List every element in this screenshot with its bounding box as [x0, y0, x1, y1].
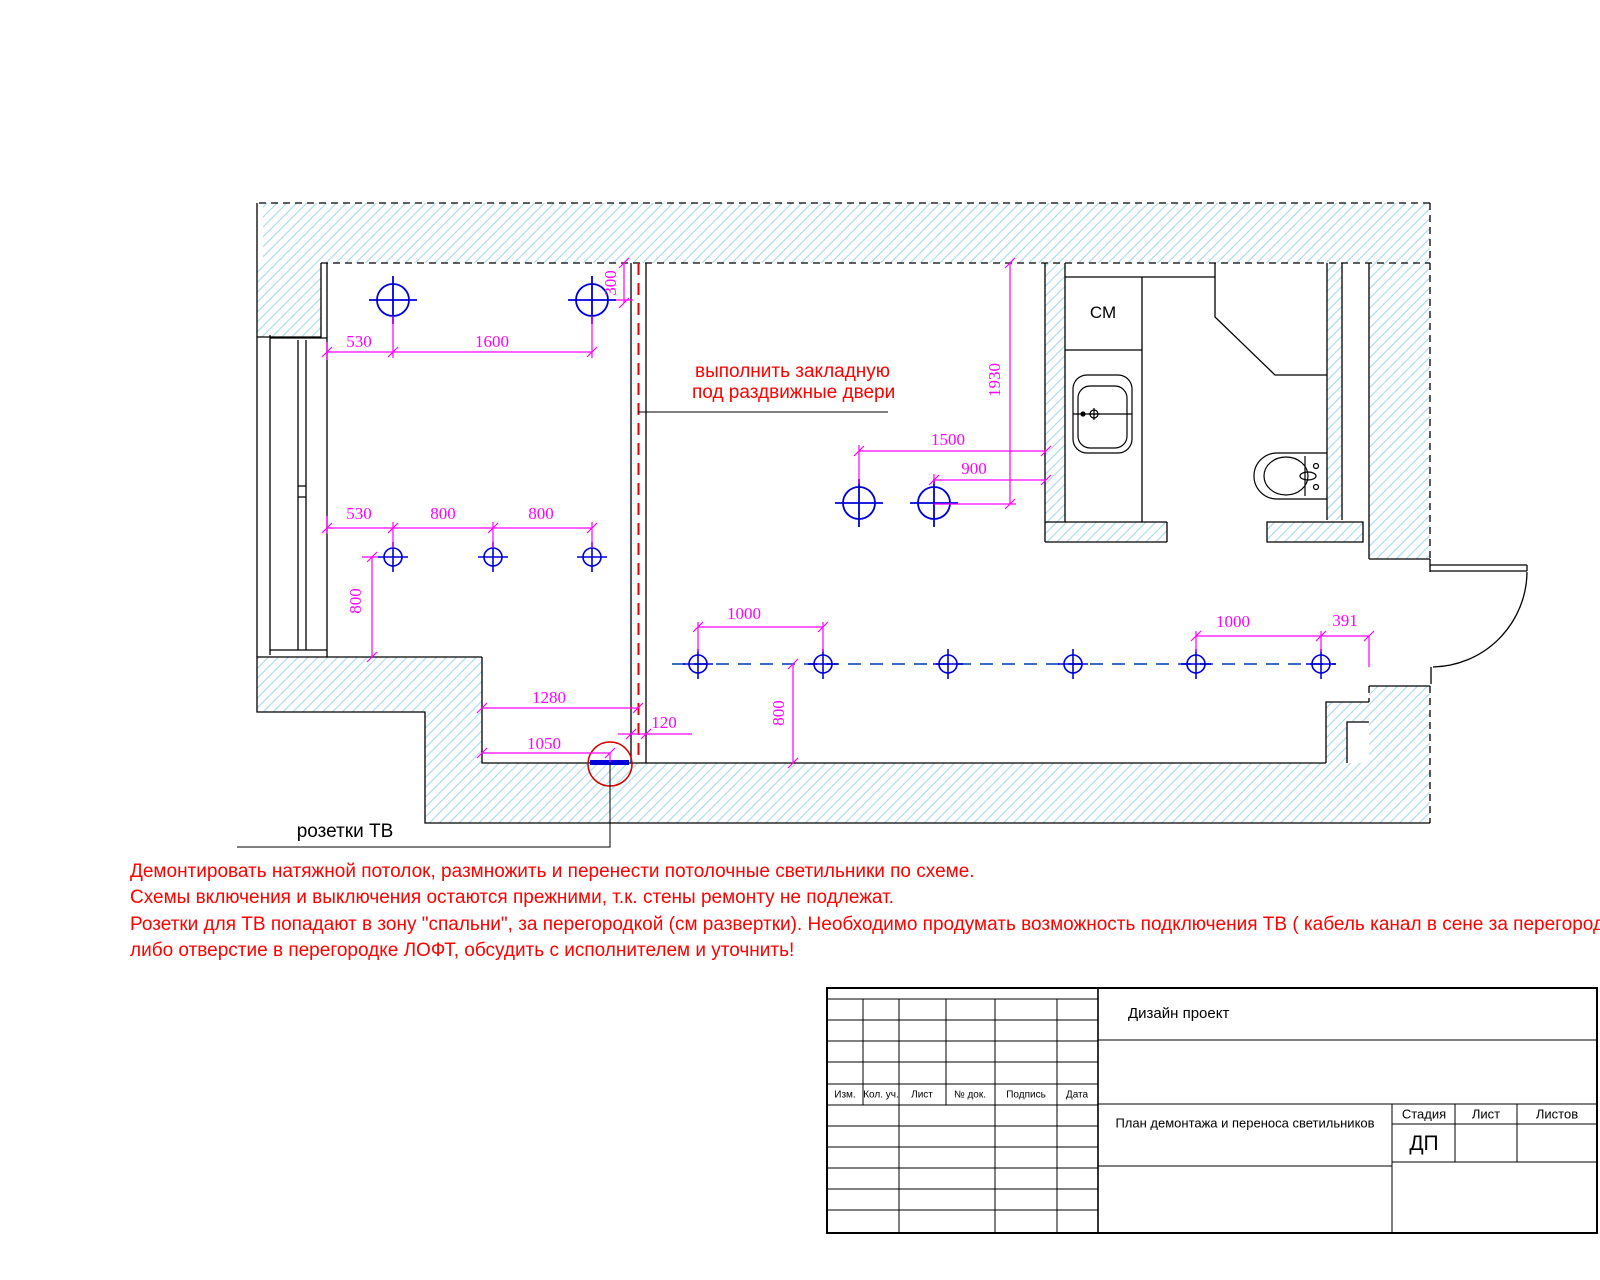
dim-label: 530 — [346, 332, 372, 352]
sink — [1073, 375, 1132, 453]
dim-label: 800 — [769, 700, 789, 726]
dim-label: 1000 — [1216, 612, 1250, 632]
note-line-3: Розетки для ТВ попадают в зону "спальни"… — [130, 914, 1600, 936]
title-block-sheets-label: Листов — [1536, 1107, 1578, 1122]
note-line-4: либо отверстие в перегородке ЛОФТ, обсуд… — [130, 940, 794, 962]
ceiling-light-small — [933, 649, 963, 679]
ceiling-lights — [369, 276, 1336, 679]
dim-label: 800 — [346, 588, 366, 614]
title-block-col-ndok: № док. — [954, 1090, 986, 1101]
ceiling-light-large — [835, 479, 883, 527]
pilaster-notch — [1347, 722, 1369, 763]
sliding-door-note-line1: выполнить закладную — [692, 361, 895, 382]
ceiling-light-small — [808, 649, 838, 679]
dim-label: 1000 — [727, 604, 761, 624]
dim-label: 800 — [528, 504, 554, 524]
ceiling-light-small — [1058, 649, 1088, 679]
dim-label: 1500 — [931, 430, 965, 450]
dim-label: 800 — [430, 504, 456, 524]
ceiling-light-small — [683, 649, 713, 679]
dim-label: 530 — [346, 504, 372, 524]
title-block-col-list: Лист — [911, 1090, 933, 1101]
title-block-col-kol: Кол. уч. — [863, 1090, 899, 1101]
sliding-door-note-line2: под раздвижные двери — [692, 382, 895, 403]
entry-door — [1430, 559, 1527, 684]
ceiling-light-large — [910, 479, 958, 527]
title-block-sheet-name: План демонтажа и переноса светильников — [1115, 1116, 1374, 1131]
dim-label: 120 — [651, 713, 677, 733]
title-block-col-data: Дата — [1066, 1090, 1088, 1101]
title-block-stage-value: ДП — [1409, 1132, 1438, 1156]
floor-plan-svg — [0, 0, 1600, 1280]
tv-sockets-label: розетки ТВ — [297, 821, 394, 843]
title-block-project: Дизайн проект — [1128, 1005, 1229, 1022]
dim-label: 1280 — [532, 688, 566, 708]
lighting-demolition-plan: 530 1600 300 530 800 800 800 1930 1500 9… — [0, 0, 1600, 1280]
title-block-sheet-label: Лист — [1472, 1107, 1500, 1122]
dim-label: 1930 — [985, 363, 1005, 397]
title-block-col-izm: Изм. — [834, 1090, 855, 1101]
toilet — [1254, 453, 1327, 499]
dim-label: 900 — [961, 459, 987, 479]
note-line-2: Схемы включения и выключения остаются пр… — [130, 887, 894, 909]
ceiling-light-small — [1181, 649, 1211, 679]
ceiling-light-small — [1306, 649, 1336, 679]
title-block-stage-label: Стадия — [1402, 1107, 1446, 1122]
title-block-col-podpis: Подпись — [1006, 1090, 1046, 1101]
sliding-door-note: выполнить закладную под раздвижные двери — [692, 361, 895, 403]
dim-label: 1600 — [475, 332, 509, 352]
dim-label: 1050 — [527, 734, 561, 754]
washing-machine-label: СМ — [1090, 303, 1116, 323]
dim-label: 300 — [601, 270, 621, 296]
dim-label: 391 — [1332, 611, 1358, 631]
note-line-1: Демонтировать натяжной потолок, размножи… — [130, 861, 975, 883]
